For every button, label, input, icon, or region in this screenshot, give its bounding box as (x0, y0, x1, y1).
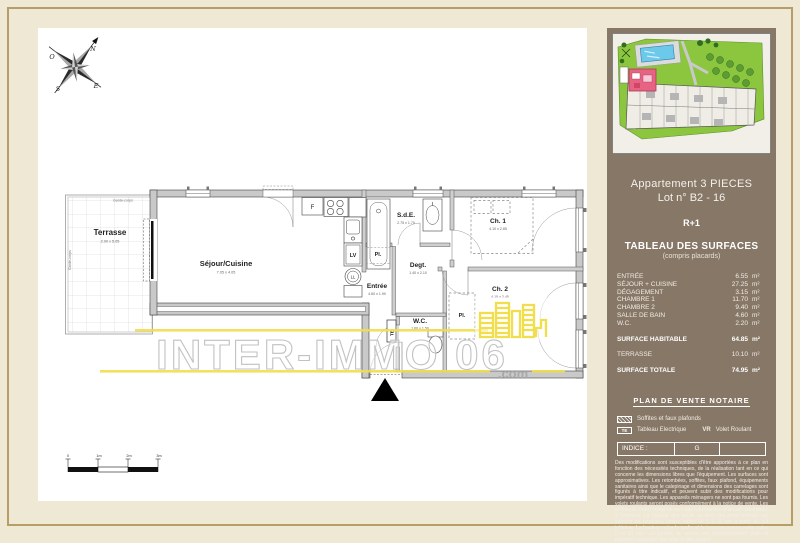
te-swatch-icon: TE (617, 427, 632, 434)
floor-level: R+1 (607, 218, 776, 228)
site-plan-pool (635, 41, 681, 67)
room-label-ch2: Ch. 2 (492, 286, 508, 293)
site-plan-thumbnail (612, 33, 771, 154)
hatch-swatch-icon (617, 416, 632, 423)
notary-plan-title: PLAN DE VENTE NOTAIRE (633, 396, 749, 407)
table-row: ENTRÉE6.55m² (617, 273, 766, 281)
surface-totals: SURFACE HABITABLE64.85m² TERRASSE10.10m²… (617, 336, 766, 375)
room-label-degagement: Degt. (410, 262, 426, 269)
floor-plan-sheet: { "colors": { "paper_cream": "#efe8d5", … (0, 0, 800, 533)
lot-number: Lot n° B2 - 16 (607, 192, 776, 204)
washer-label: LL (351, 275, 356, 280)
watermark-suffix: .com (498, 366, 528, 381)
room-dim-entree: 4.60 x 1.90 (368, 292, 386, 296)
room-dim-ch1: 4.10 x 2.85 (489, 227, 507, 231)
svg-text:0: 0 (67, 454, 69, 458)
apartment-title: Appartement 3 PIECES (607, 178, 776, 190)
index-value: G (675, 443, 720, 455)
total-row-habitable: SURFACE HABITABLE64.85m² (617, 336, 766, 344)
legend-row-te-vr: TE Tableau Electrique VR Volet Roulant (617, 427, 766, 434)
room-label-ch1: Ch. 1 (490, 218, 506, 225)
room-label-entree: Entrée (367, 283, 388, 290)
table-row: CHAMBRE 111.70m² (617, 296, 766, 304)
guardrail-label-left: Garde-corps (68, 250, 72, 270)
total-row-totale: SURFACE TOTALE74.95m² (617, 367, 766, 375)
compass-west: O (49, 53, 55, 61)
room-label-sejour: Séjour/Cuisine (200, 259, 253, 268)
terrace-area: Garde-corps Garde-corps Terrasse 2.00 x … (66, 195, 153, 334)
total-row-terrasse: TERRASSE10.10m² (617, 351, 766, 359)
fridge-label: F (311, 205, 315, 211)
room-dim-terrasse: 2.00 x 5.05 (101, 240, 120, 244)
vr-key: VR (702, 427, 710, 433)
room-dim-sde: 2.75 x 1.70 (397, 221, 415, 225)
surface-table-subtitle: (compris placards) (607, 253, 776, 260)
room-label-terrasse: Terrasse (94, 228, 127, 237)
svg-text:2m: 2m (126, 454, 131, 458)
legal-disclaimer: Des modifications sont susceptibles d'êt… (615, 461, 768, 543)
room-label-wc: W.C. (413, 318, 427, 325)
table-row: SALLE DE BAIN4.60m² (617, 312, 766, 320)
table-row: CHAMBRE 29.40m² (617, 304, 766, 312)
site-plan-highlighted-lot (629, 69, 656, 91)
room-label-placard-hall: Pl. (375, 252, 382, 258)
legend: Soffites et faux plafonds TE Tableau Ele… (617, 416, 766, 434)
compass-east: E (93, 82, 99, 90)
floor-plan-drawing: N O E S Garde-corps Garde-corps Terrasse… (30, 25, 590, 505)
table-row: DÉGAGEMENT3.15m² (617, 289, 766, 297)
surface-table-title: TABLEAU DES SURFACES (607, 241, 776, 252)
room-label-sde: S.d.E. (397, 212, 415, 219)
compass-north: N (89, 45, 96, 53)
index-label: INDICE : (618, 443, 675, 455)
room-dim-degagement: 1.40 x 2.10 (409, 271, 427, 275)
dishwasher-label: LV (350, 253, 357, 259)
svg-text:3m: 3m (156, 454, 161, 458)
index-table: INDICE : G (617, 442, 766, 456)
legend-row-soffites: Soffites et faux plafonds (617, 416, 766, 423)
title-block-panel: Appartement 3 PIECES Lot n° B2 - 16 R+1 … (607, 28, 776, 505)
table-row: SÉJOUR + CUISINE27.25m² (617, 281, 766, 289)
room-label-placard-ch2: Pl. (459, 313, 466, 319)
compass-south: S (56, 85, 61, 93)
svg-text:1m: 1m (96, 454, 101, 458)
room-dim-sejour: 7.05 x 4.05 (217, 271, 236, 275)
guardrail-label-top: Garde-corps (113, 199, 133, 203)
table-row: W.C.2.20m² (617, 320, 766, 328)
surface-table: ENTRÉE6.55m² SÉJOUR + CUISINE27.25m² DÉG… (617, 273, 766, 328)
